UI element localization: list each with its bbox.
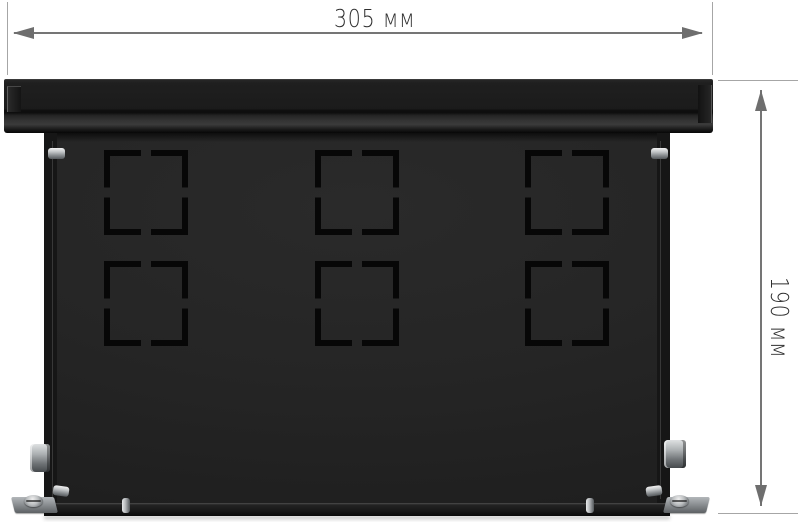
knockout-slot xyxy=(104,340,188,346)
knockout-slot xyxy=(525,261,531,346)
knockout-slot xyxy=(525,340,609,346)
front-panel xyxy=(57,133,657,503)
enclosure-body xyxy=(44,133,670,516)
knockout-slot xyxy=(104,150,110,235)
knockout-square xyxy=(525,150,609,235)
knockout-slot xyxy=(315,340,399,346)
knockout-slot xyxy=(603,150,609,235)
knockout-slot xyxy=(525,150,531,235)
knockout-slot xyxy=(603,261,609,346)
knockout-slot xyxy=(525,229,609,235)
knockout-slot xyxy=(525,150,609,156)
foot-screw-icon xyxy=(670,495,689,507)
knockout-slot xyxy=(315,261,321,346)
knockout-slot xyxy=(104,229,188,235)
knockout-square xyxy=(525,261,609,346)
knockout-slot xyxy=(525,261,609,267)
screw-icon xyxy=(651,148,668,159)
knockout-slot xyxy=(182,261,188,346)
drop-shadow xyxy=(44,516,670,521)
lid-right-return-edge xyxy=(698,85,712,123)
knockout-slot xyxy=(315,150,321,235)
knockout-slot xyxy=(315,150,399,156)
knockout-slot xyxy=(104,150,188,156)
cable-gland-icon xyxy=(664,440,686,468)
cable-gland-icon xyxy=(30,444,50,472)
body-right-edge-highlight xyxy=(660,141,661,499)
knockout-slot xyxy=(393,150,399,235)
screw-icon xyxy=(586,498,594,513)
knockout-square xyxy=(315,150,399,235)
product-dimension-diagram: 305 мм 190 мм xyxy=(0,0,800,522)
screw-icon xyxy=(52,485,69,497)
body-left-edge-highlight xyxy=(52,141,53,499)
enclosure-lid xyxy=(4,79,713,133)
bottom-flange xyxy=(44,503,670,516)
knockout-square xyxy=(104,261,188,346)
screw-icon xyxy=(122,498,130,513)
knockout-slot xyxy=(104,261,188,267)
knockout-slot xyxy=(182,150,188,235)
lid-left-return-edge xyxy=(7,86,21,112)
enclosure xyxy=(0,0,800,522)
knockout-square xyxy=(315,261,399,346)
knockout-square xyxy=(104,150,188,235)
knockout-slot xyxy=(315,261,399,267)
knockout-slot xyxy=(393,261,399,346)
screw-icon xyxy=(48,148,65,159)
knockout-slot xyxy=(104,261,110,346)
foot-screw-icon xyxy=(24,495,43,507)
knockout-slot xyxy=(315,229,399,235)
